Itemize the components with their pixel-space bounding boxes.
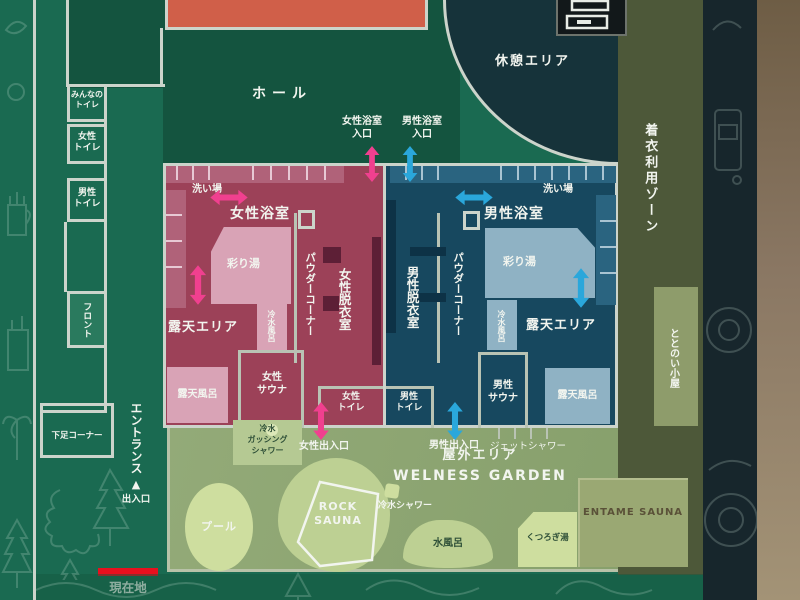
men-washing-label: 洗い場 xyxy=(543,184,573,197)
tree-doodles-icon xyxy=(40,430,170,580)
women-dressing-label: 女性脱衣室 xyxy=(336,258,352,340)
pillar-w xyxy=(298,210,315,229)
women-bath-entrance-label: 女性浴室 入口 xyxy=(334,116,390,141)
stall-tick xyxy=(600,220,616,222)
women-irodori-label: 彩り湯 xyxy=(227,257,260,271)
men-toilet-bath-label: 男性 トイレ xyxy=(388,392,430,415)
stall-tick xyxy=(288,166,290,180)
facility-map-sign: 着衣利用ゾーン ととのい小屋 ホール 休憩エリア みんなの トイレ 女性 トイレ… xyxy=(0,0,800,600)
women-toilet-bath-label: 女性 トイレ xyxy=(328,392,374,415)
men-bath-entrance-arrow-icon xyxy=(401,146,419,182)
gushing-shower-label: 冷水 ガッシング シャワー xyxy=(233,424,302,456)
stall-tick xyxy=(324,166,326,180)
wood-edge xyxy=(757,0,800,600)
wall-powder-w xyxy=(294,213,297,363)
women-sauna-label: 女性 サウナ xyxy=(244,372,300,397)
women-bath-horizontal-arrow-icon xyxy=(210,189,248,206)
rock-sauna-label: ROCK SAUNA xyxy=(300,500,376,528)
pillar-m xyxy=(463,211,480,230)
women-open-air-arrow-icon xyxy=(189,260,207,310)
men-sauna-label: 男性 サウナ xyxy=(478,380,528,405)
wellness-garden-label: WELNESS GARDEN xyxy=(390,468,570,486)
stall-tick xyxy=(517,166,519,180)
women-cold-bath-label: 冷水風呂 xyxy=(266,304,276,348)
vending-machines-icon xyxy=(560,0,623,34)
wall-powder-m xyxy=(437,213,440,363)
wall-m-toilet-top xyxy=(386,386,434,389)
women-bath-entrance-arrow-icon xyxy=(363,146,381,182)
stall-tick xyxy=(166,266,182,268)
right-strip-doodles-icon xyxy=(703,0,757,600)
entame-sauna xyxy=(578,478,688,567)
leaf-drink-doodles-icon xyxy=(0,0,35,600)
jet-shower-tick xyxy=(498,428,500,439)
women-exit-label: 女性出入口 xyxy=(296,441,352,454)
front-desk-label: フロント xyxy=(80,296,91,344)
clothed-zone-label: 着衣利用ゾーン xyxy=(641,84,657,274)
men-cold-bath-label: 冷水風呂 xyxy=(496,304,506,348)
stall-tick xyxy=(600,246,616,248)
stall-tick xyxy=(270,166,272,180)
men-dressing-label: 男性脱衣室 xyxy=(404,256,420,338)
men-open-air-bath-label: 露天風呂 xyxy=(545,390,610,403)
men-bath-entrance-label: 男性浴室 入口 xyxy=(394,116,450,141)
wall-left-room xyxy=(64,222,67,292)
water-bath-label: 水風呂 xyxy=(403,538,493,551)
wall-hall-corner xyxy=(160,28,163,87)
orange-room xyxy=(165,0,428,30)
women-bath-label: 女性浴室 xyxy=(230,206,290,224)
stall-tick xyxy=(585,166,587,180)
stall-tick xyxy=(176,166,178,180)
wall-m-toilet-right xyxy=(431,386,434,428)
stall-tick xyxy=(166,214,182,216)
women-powder-label: パウダーコーナー xyxy=(303,238,316,350)
wall-hall-left xyxy=(66,0,69,87)
women-toilet-nw-label: 女性 トイレ xyxy=(68,132,106,155)
wall-w-toilet-top xyxy=(318,386,383,389)
women-open-air-bath-label: 露天風呂 xyxy=(167,389,228,402)
women-washing-stalls-left xyxy=(166,190,186,308)
stall-tick xyxy=(602,166,604,180)
wall-w-sauna-right xyxy=(301,350,304,428)
women-locker xyxy=(372,237,381,365)
stall-tick xyxy=(192,166,194,180)
rest-area-label: 休憩エリア xyxy=(495,54,570,70)
wall-w-sauna-left xyxy=(238,350,241,428)
stall-tick xyxy=(551,166,553,180)
stall-tick xyxy=(208,166,210,180)
men-powder-label: パウダーコーナー xyxy=(451,238,464,350)
jet-shower-label: ジェットシャワー xyxy=(490,441,566,453)
men-locker xyxy=(386,200,396,333)
men-open-air-arrow-icon xyxy=(572,264,590,312)
hall-label: ホール xyxy=(252,86,312,104)
jet-shower-tick xyxy=(530,428,532,439)
pool-label: プール xyxy=(185,520,253,534)
stall-tick xyxy=(166,240,182,242)
men-locker xyxy=(410,247,446,256)
kutsurogi-bath-label: くつろぎ湯 xyxy=(518,533,577,544)
cold-shower-label: 冷水シャワー xyxy=(370,501,440,512)
wall-m-sauna-top xyxy=(478,352,528,355)
stall-tick xyxy=(568,166,570,180)
men-toilet-nw-label: 男性 トイレ xyxy=(68,188,106,211)
men-bath-label: 男性浴室 xyxy=(484,206,544,224)
men-exit-arrow-icon xyxy=(446,402,464,440)
jet-shower-tick xyxy=(546,428,548,439)
jet-shower-tick xyxy=(514,428,516,439)
stall-tick xyxy=(437,166,439,180)
men-irodori-label: 彩り湯 xyxy=(503,255,536,269)
stall-tick xyxy=(252,166,254,180)
men-open-air-area-label: 露天エリア xyxy=(526,318,596,334)
entame-sauna-label: ENTAME SAUNA xyxy=(578,507,688,520)
women-open-air-area-label: 露天エリア xyxy=(168,320,238,336)
wall-w-sauna-top xyxy=(238,350,304,353)
men-washing-stalls-top xyxy=(390,166,616,183)
stall-tick xyxy=(421,166,423,180)
totonoi-hut-label: ととのい小屋 xyxy=(666,300,679,415)
everyone-toilet-label: みんなの トイレ xyxy=(68,90,106,110)
frame-line-left xyxy=(33,0,36,600)
stall-tick xyxy=(306,166,308,180)
stall-tick xyxy=(600,272,616,274)
men-washing-stalls-right xyxy=(596,195,616,305)
stall-tick xyxy=(534,166,536,180)
men-exit-label: 男性出入口 xyxy=(426,440,482,453)
women-exit-arrow-icon xyxy=(312,402,330,440)
men-bath-horizontal-arrow-icon xyxy=(455,189,493,206)
stall-tick xyxy=(500,166,502,180)
cold-shower-pad xyxy=(384,483,400,499)
